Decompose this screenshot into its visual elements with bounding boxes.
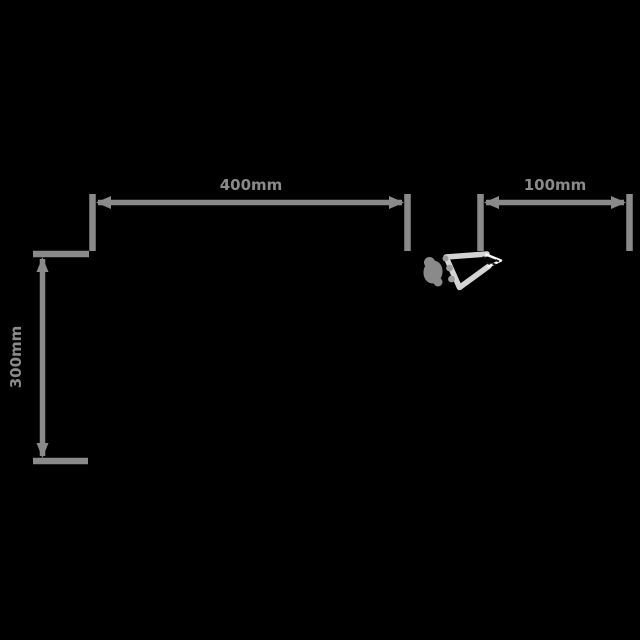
panel-clip-nub-top (443, 256, 449, 262)
depth-arrow-right-icon (611, 196, 626, 209)
depth-dimension-label: 100mm (524, 176, 587, 194)
panel-clip-nub-bottom (448, 276, 455, 283)
width-dimension-label: 400mm (220, 176, 283, 194)
dimension-height: 300mm (7, 254, 89, 461)
height-arrow-bottom-icon (37, 443, 49, 458)
panel-clip-nub-middle (446, 265, 453, 272)
hatch-dash (486, 263, 490, 265)
hatch-dash (493, 264, 497, 266)
dimension-drawing: 400mm 100mm 300mm (0, 0, 640, 640)
hatch-dash (496, 260, 500, 262)
dimension-drawing-canvas: 400mm 100mm 300mm (0, 0, 640, 640)
hatch-dash (483, 257, 487, 259)
width-arrow-left-icon (96, 196, 111, 209)
hatch-dash (490, 259, 494, 261)
bracket-blob (422, 257, 444, 287)
bracket-blob-bottom (434, 278, 443, 287)
height-arrow-top-icon (37, 257, 49, 272)
dimension-width: 400mm (93, 176, 408, 251)
bracket-blob-top (424, 257, 435, 268)
dimension-depth: 100mm (481, 176, 630, 251)
depth-arrow-left-icon (484, 196, 499, 209)
height-dimension-label: 300mm (7, 326, 25, 389)
product-shape (422, 254, 501, 288)
panel-outline (446, 254, 489, 288)
width-arrow-right-icon (389, 196, 404, 209)
